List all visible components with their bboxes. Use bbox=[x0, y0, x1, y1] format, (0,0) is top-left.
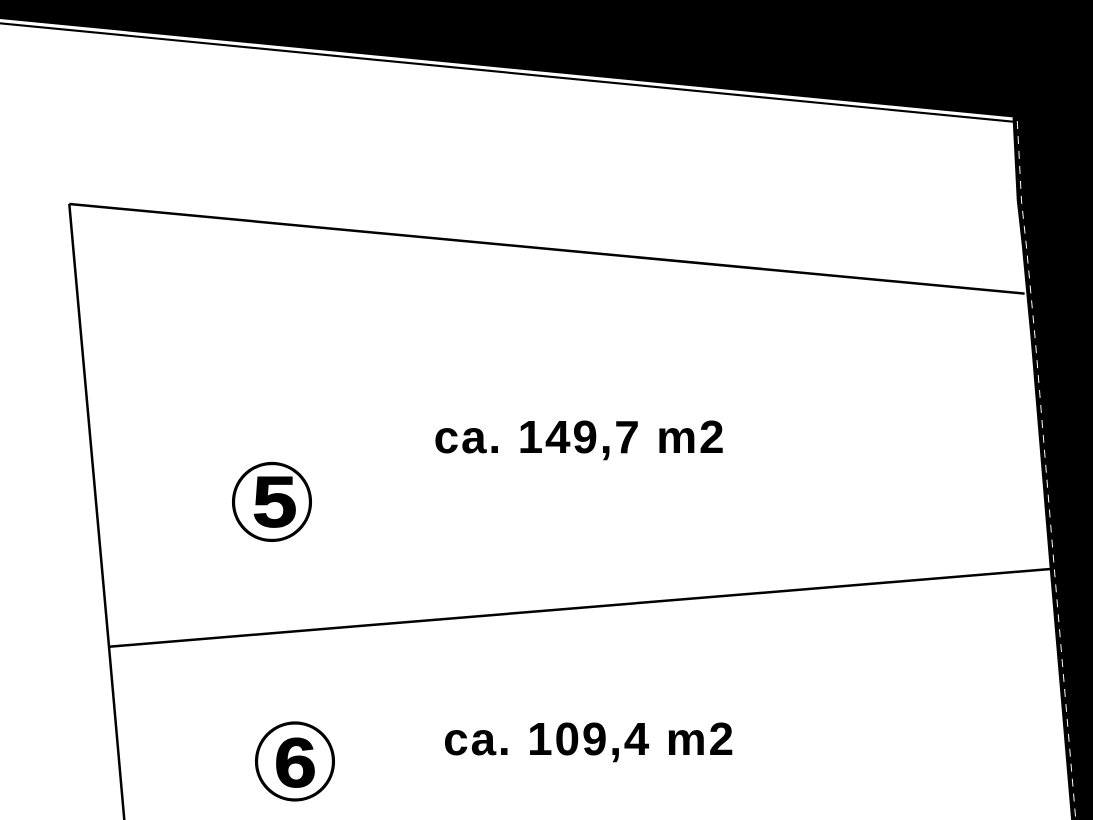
svg-text:6: 6 bbox=[274, 724, 318, 802]
svg-text:ca. 109,4 m2: ca. 109,4 m2 bbox=[443, 713, 736, 765]
svg-text:ca. 149,7 m2: ca. 149,7 m2 bbox=[434, 411, 727, 463]
svg-text:5: 5 bbox=[252, 462, 298, 543]
